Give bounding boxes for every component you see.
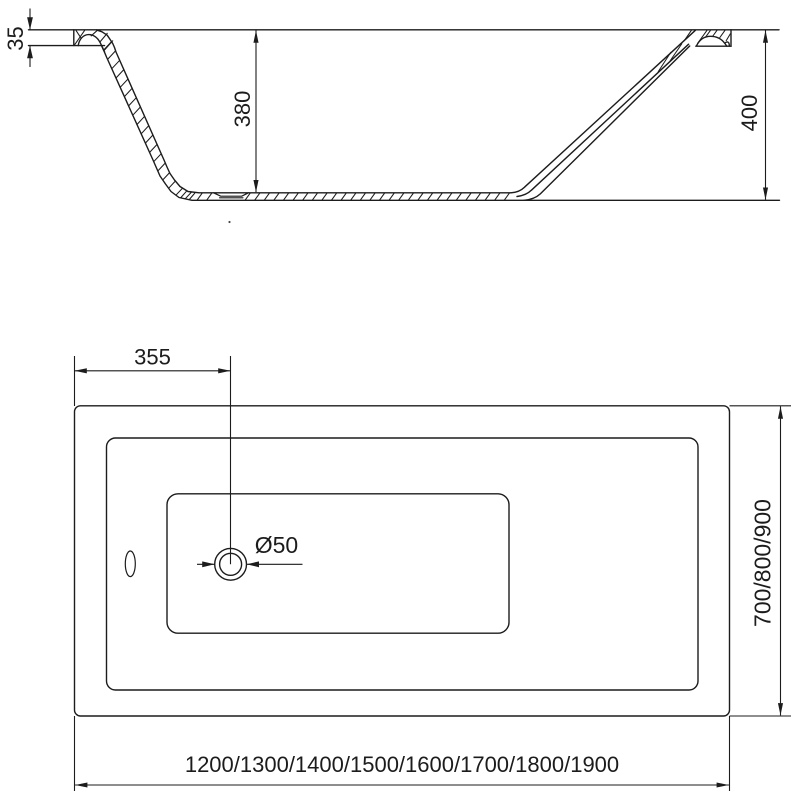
svg-text:1200/1300/1400/1500/1600/1700/: 1200/1300/1400/1500/1600/1700/1800/1900 [185, 752, 619, 777]
svg-text:355: 355 [134, 345, 171, 370]
svg-text:400: 400 [737, 95, 762, 132]
svg-text:700/800/900: 700/800/900 [750, 499, 776, 627]
svg-text:380: 380 [230, 91, 255, 128]
svg-text:35: 35 [3, 26, 28, 50]
svg-text:Ø50: Ø50 [255, 532, 298, 558]
